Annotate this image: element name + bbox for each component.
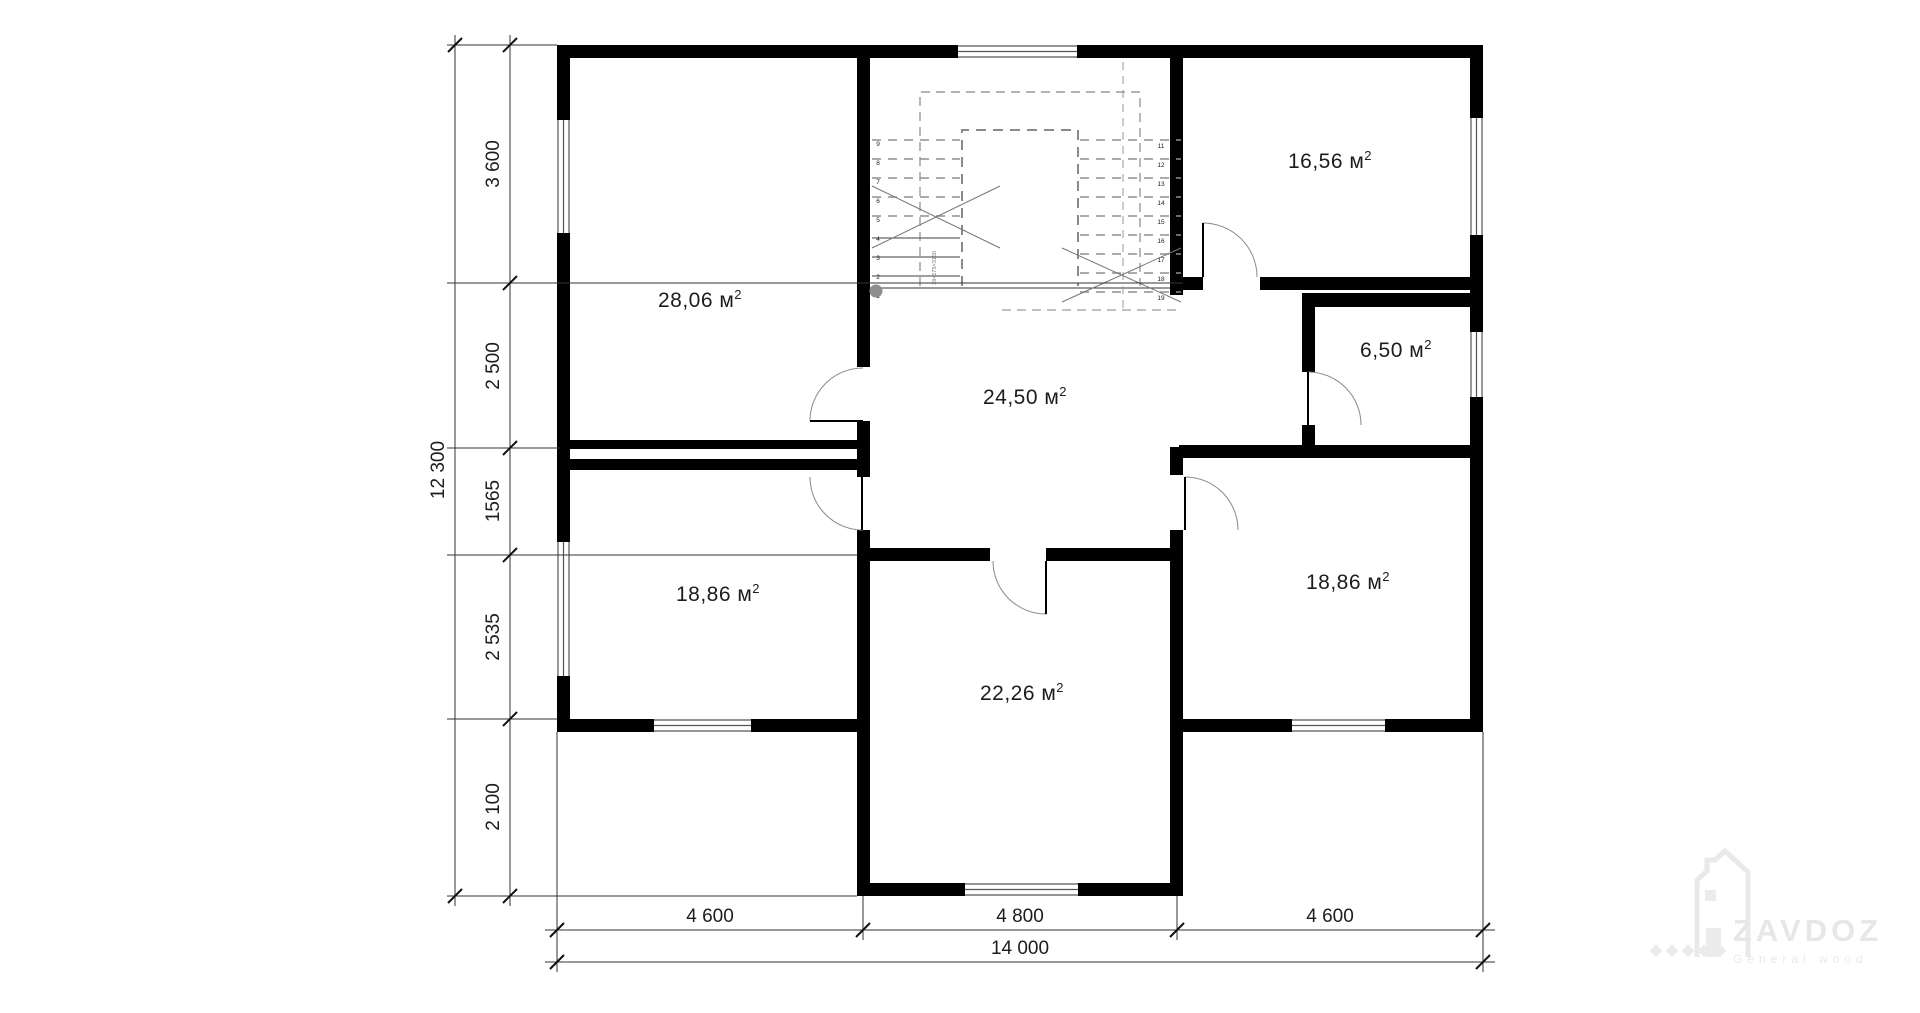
wall <box>1470 45 1483 118</box>
wall <box>751 719 870 732</box>
wall <box>1385 719 1483 732</box>
wall <box>570 440 857 449</box>
svg-text:12: 12 <box>1157 162 1165 169</box>
door-swing-arc <box>810 368 863 421</box>
stair-numbers-right: 11 12 13 14 15 16 17 18 19 <box>1157 143 1165 302</box>
wall <box>857 421 870 477</box>
wall <box>1170 58 1183 295</box>
door-swing-arc <box>1185 477 1238 530</box>
svg-text:6: 6 <box>876 198 880 205</box>
svg-text:14: 14 <box>1157 200 1165 207</box>
room-label-28-06: 28,06 м2 <box>658 287 742 312</box>
dimension-lines <box>447 35 1495 972</box>
wall <box>570 459 857 470</box>
window <box>558 120 569 233</box>
watermark-brand-text: ZAVDOZ <box>1733 913 1882 948</box>
svg-text:19: 19 <box>1157 295 1165 302</box>
door-swing-arc <box>1203 223 1257 277</box>
wall <box>1302 425 1315 445</box>
wall <box>870 548 990 561</box>
wall <box>857 883 965 896</box>
dim-bottom-total-14000: 14 000 <box>991 938 1049 959</box>
svg-text:11: 11 <box>1158 143 1165 150</box>
dim-left-2535: 2 535 <box>483 613 504 661</box>
window <box>1292 720 1385 731</box>
stair-break-lines <box>872 186 1181 302</box>
svg-text:9: 9 <box>876 141 880 148</box>
svg-text:16: 16 <box>1157 238 1165 245</box>
watermark-tagline-text: General wood <box>1733 952 1868 966</box>
wall <box>1302 307 1315 372</box>
interior-walls <box>570 58 1470 883</box>
wall <box>1046 548 1170 561</box>
room-label-6-50: 6,50 м2 <box>1360 337 1432 362</box>
watermark-house-window <box>1705 890 1716 901</box>
window <box>965 884 1078 895</box>
svg-text:5: 5 <box>876 217 880 224</box>
wall <box>1260 277 1470 290</box>
svg-text:3: 3 <box>876 255 880 262</box>
floor-plan-drawing: 9 8 7 6 5 4 3 2 1 11 12 13 14 15 16 17 1… <box>0 0 1920 1013</box>
wall <box>1302 293 1470 307</box>
dim-left-3600: 3 600 <box>483 140 504 188</box>
wall <box>857 530 870 883</box>
svg-text:17: 17 <box>1157 257 1165 264</box>
stair-numbers-left: 9 8 7 6 5 4 3 2 1 <box>876 141 880 300</box>
door-hall-to-room-18-left <box>810 477 863 530</box>
room-label-18-86-left: 18,86 м2 <box>676 581 760 606</box>
wall <box>557 45 570 120</box>
svg-text:8: 8 <box>876 160 880 167</box>
window <box>558 542 569 676</box>
door-hall-to-room-28 <box>810 368 863 421</box>
wall <box>557 233 570 542</box>
wall <box>1170 719 1292 732</box>
door-hall-to-room-22 <box>993 561 1046 614</box>
stair-newel-post <box>870 285 883 298</box>
stair-treads-right <box>1080 140 1181 292</box>
wall <box>557 45 958 58</box>
svg-text:18: 18 <box>1157 276 1165 283</box>
svg-text:4: 4 <box>876 236 880 243</box>
dim-bottom-4600-left: 4 600 <box>686 906 734 927</box>
door-swing-arc <box>1308 372 1361 425</box>
wall <box>1078 883 1183 896</box>
wall <box>1470 235 1483 332</box>
door-hall-to-room-6 <box>1308 372 1361 425</box>
wall <box>857 58 870 367</box>
wall <box>1179 445 1470 458</box>
watermark-logo: ZAVDOZ General wood <box>1650 851 1883 966</box>
dim-left-1565: 1565 <box>483 480 504 522</box>
wall <box>1470 397 1483 732</box>
dim-left-2100: 2 100 <box>483 783 504 831</box>
window <box>654 720 751 731</box>
dimension-ticks <box>448 38 1490 969</box>
door-swing-arc <box>993 561 1046 614</box>
stair-treads-left-solid <box>872 238 960 276</box>
staircase: 9 8 7 6 5 4 3 2 1 11 12 13 14 15 16 17 1… <box>870 62 1182 310</box>
windows <box>558 46 1482 895</box>
room-label-16-56: 16,56 м2 <box>1288 148 1372 173</box>
dim-left-total-12300: 12 300 <box>428 441 449 499</box>
door-hall-to-room-18-right <box>1185 477 1238 530</box>
svg-text:7: 7 <box>876 179 880 186</box>
door-hall-to-room-16 <box>1203 223 1257 277</box>
window <box>1471 118 1482 235</box>
wall <box>1183 277 1203 290</box>
room-label-18-86-right: 18,86 м2 <box>1306 569 1390 594</box>
floor-plan-page: 9 8 7 6 5 4 3 2 1 11 12 13 14 15 16 17 1… <box>0 0 1920 1013</box>
window <box>958 46 1077 57</box>
dim-bottom-4600-right: 4 600 <box>1306 906 1354 927</box>
svg-text:13: 13 <box>1157 181 1165 188</box>
room-labels: 28,06 м2 16,56 м2 24,50 м2 6,50 м2 18,86… <box>658 148 1432 705</box>
wall <box>557 719 654 732</box>
svg-text:15: 15 <box>1157 219 1165 226</box>
room-label-22-26: 22,26 м2 <box>980 680 1064 705</box>
wall <box>1170 530 1183 883</box>
wall <box>1077 45 1483 58</box>
dim-bottom-4800: 4 800 <box>996 906 1044 927</box>
stair-outline-inner-dashed <box>962 130 1078 286</box>
stair-treads-left <box>872 140 960 216</box>
dim-left-2500: 2 500 <box>483 342 504 390</box>
room-label-24-50: 24,50 м2 <box>983 384 1067 409</box>
svg-text:2: 2 <box>876 274 880 281</box>
stair-formula-note: 18×175=3150 <box>932 251 938 285</box>
window <box>1471 332 1482 397</box>
door-swing-arc <box>810 477 863 530</box>
